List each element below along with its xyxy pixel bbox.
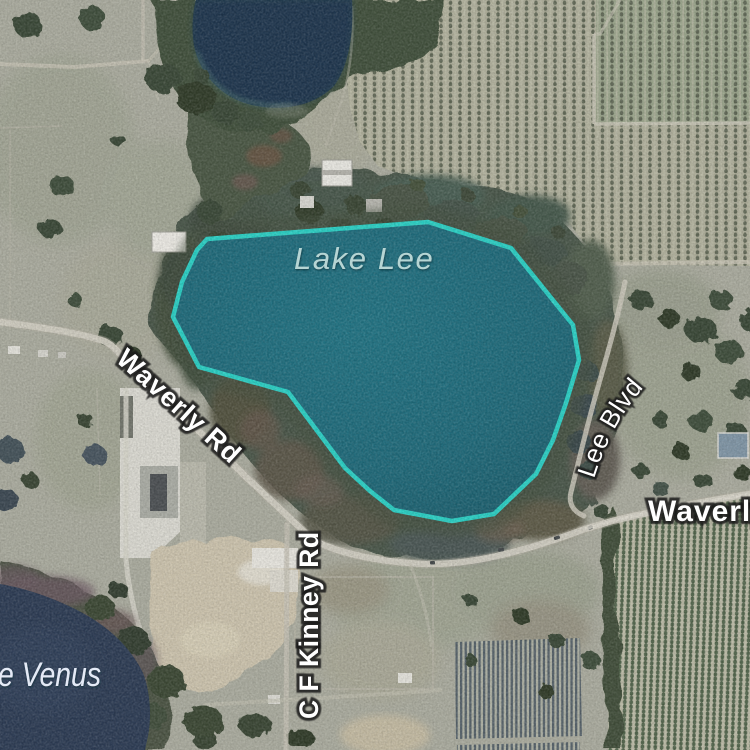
- svg-text:C F Kinney Rd: C F Kinney Rd: [294, 531, 324, 719]
- svg-text:Lake Lee: Lake Lee: [294, 241, 434, 276]
- svg-text:Waverly: Waverly: [648, 495, 750, 528]
- svg-text:e Venus: e Venus: [0, 656, 101, 694]
